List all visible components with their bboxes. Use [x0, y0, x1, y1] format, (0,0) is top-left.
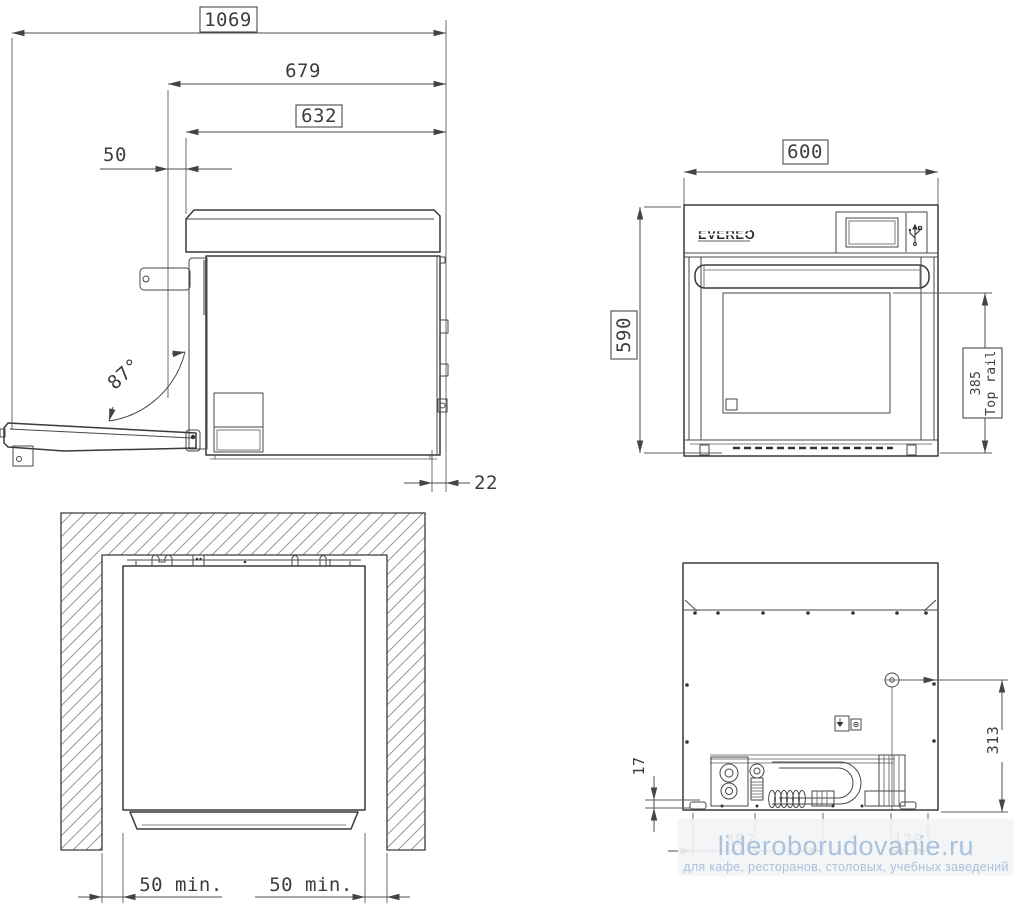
foot [690, 802, 706, 809]
open-door [0, 423, 200, 466]
door-window [723, 293, 890, 413]
door-gasket [203, 260, 207, 315]
watermark: lideroborudovanie.ru для кафе, ресторано… [678, 819, 1014, 876]
dim-87deg: 87° [103, 354, 144, 394]
dim-top-rail: 385 Top rail [893, 293, 1002, 453]
watermark-site-link[interactable]: lideroborudovanie.ru [718, 831, 974, 861]
oven-dimension-drawing: 1069 679 632 50 [0, 0, 1024, 909]
dim-width: 600 [684, 140, 938, 206]
dim-50: 50 [103, 144, 127, 166]
dim-22: 22 [474, 472, 498, 494]
dim-height: 590 [611, 207, 722, 453]
side-control-box [214, 393, 263, 452]
door-handle[interactable] [695, 265, 929, 288]
rating-plate-icons [835, 716, 861, 731]
installation-view: 50 min. 50 min. [61, 513, 425, 903]
display-screen[interactable] [846, 218, 898, 247]
dim-rear-clearance: 22 [404, 472, 498, 494]
rear-view: 17 313 382 120 [630, 563, 1008, 856]
dim-1069: 1069 [204, 9, 252, 31]
service-assembly [690, 755, 916, 809]
valve [750, 764, 764, 778]
dim-50-min-right: 50 min. [269, 874, 353, 896]
oven-door[interactable] [689, 257, 934, 440]
hinge-bracket [140, 268, 190, 290]
dim-body-depth: 632 [186, 105, 446, 132]
watermark-tagline: для кафе, ресторанов, столовых, учебных … [683, 860, 1008, 874]
connection-gland [885, 673, 899, 810]
oven-plan [123, 555, 365, 829]
dim-depth-to-hinge: 679 [168, 60, 446, 84]
dim-679: 679 [285, 60, 321, 82]
brand-logo: EVEREO [698, 227, 755, 242]
technical-drawing-page: 1069 679 632 50 [0, 0, 1024, 909]
control-panel [836, 212, 927, 253]
dim-590: 590 [613, 317, 635, 353]
dim-connection-height: 313 [899, 680, 1008, 812]
dim-385: 385 [969, 371, 984, 396]
dim-50-min-left: 50 min. [139, 874, 223, 896]
front-base [684, 440, 938, 455]
dim-17: 17 [630, 756, 648, 775]
usb-icon [909, 225, 922, 245]
label-top-rail: Top rail [984, 350, 999, 416]
front-view: 600 EVEREO [611, 140, 1002, 456]
dim-632: 632 [301, 105, 337, 127]
dim-front-offset: 50 [100, 144, 232, 169]
dim-overall-depth: 1069 [12, 7, 446, 33]
dim-313: 313 [984, 726, 1002, 755]
side-view: 1069 679 632 50 [0, 7, 498, 494]
dim-door-angle: 87° [103, 352, 185, 421]
dim-600: 600 [787, 141, 823, 163]
door-plan [130, 812, 358, 829]
dim-clearances: 50 min. 50 min. [78, 833, 410, 903]
corrugated-hose [769, 791, 806, 808]
wall-hatch [61, 513, 425, 850]
